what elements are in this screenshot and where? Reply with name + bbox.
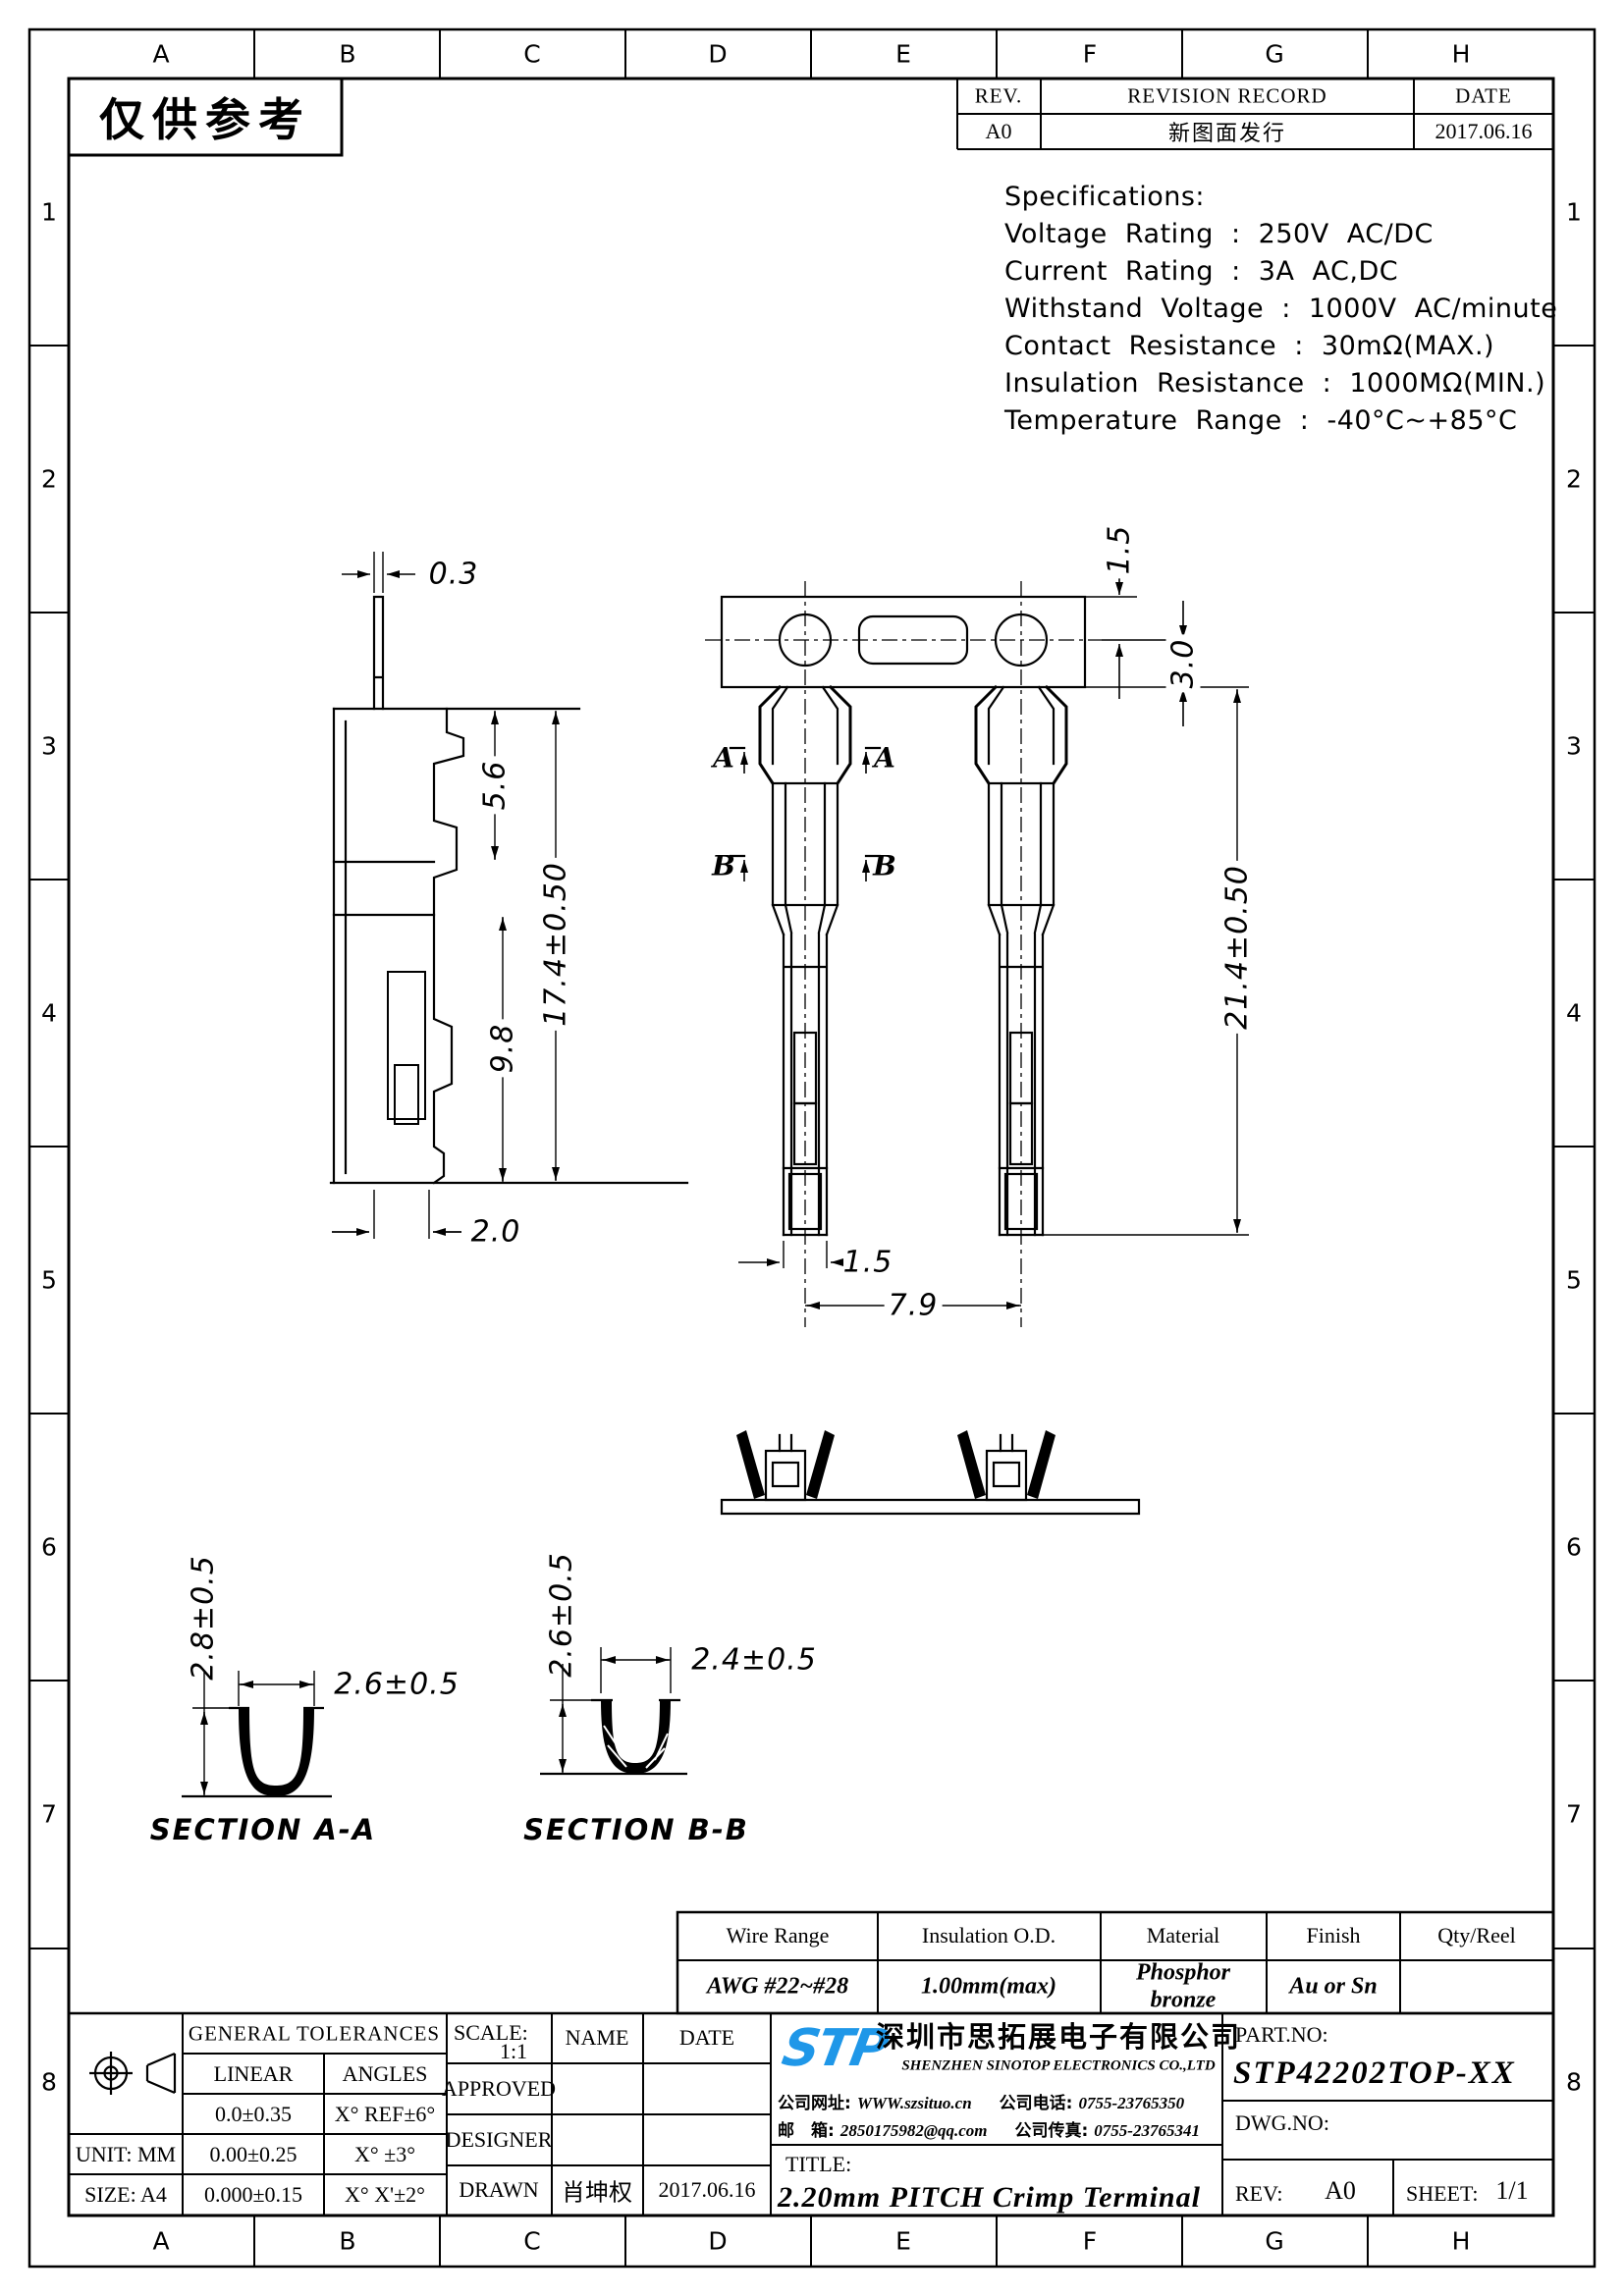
part-no-label: PART.NO:: [1235, 2022, 1328, 2048]
revision-date-header: DATE: [1455, 84, 1512, 109]
cut-label-a-left: A: [713, 742, 734, 774]
tel-label: 公司电话:: [1000, 2094, 1073, 2113]
grid-col-bottom-g: G: [1265, 2227, 1283, 2256]
drawing-title: 2.20mm PITCH Crimp Terminal: [778, 2181, 1201, 2215]
revision-date-value: 2017.06.16: [1435, 119, 1533, 144]
unit-label: UNIT: MM: [76, 2142, 176, 2167]
fax-value: 0755-23765341: [1094, 2121, 1200, 2140]
scale-value: 1:1: [500, 2039, 527, 2064]
specification-line: Voltage Rating : 250V AC/DC: [1004, 216, 1557, 253]
grid-col-top-b: B: [339, 40, 355, 69]
front-view: [722, 597, 1085, 1235]
rev-label: REV:: [1235, 2181, 1282, 2207]
grid-col-top-c: C: [523, 40, 540, 69]
dimension-lines: [192, 552, 1249, 1796]
specifications-lines: Voltage Rating : 250V AC/DCCurrent Ratin…: [1004, 216, 1557, 440]
size-label: SIZE: A4: [84, 2182, 167, 2208]
dimension-arrows: [204, 542, 1237, 1794]
revision-rev-header: REV.: [975, 84, 1023, 109]
approved-label: APPROVED: [442, 2076, 556, 2102]
web-label: 公司网址:: [778, 2094, 851, 2113]
dim-side-thickness: 0.3: [429, 558, 479, 592]
specification-line: Contact Resistance : 30mΩ(MAX.): [1004, 328, 1557, 365]
specification-line: Temperature Range : -40°C~+85°C: [1004, 402, 1557, 440]
tel-value: 0755-23765350: [1078, 2094, 1184, 2112]
materials-insulation: 1.00mm(max): [921, 1974, 1056, 2001]
dim-section-a-width: 2.6±0.5: [334, 1668, 460, 1702]
grid-row-right-8: 8: [1566, 2068, 1582, 2097]
materials-finish: Au or Sn: [1289, 1974, 1377, 2001]
grid-row-right-2: 2: [1566, 465, 1582, 494]
tolerance-angle-3: X° X'±2°: [345, 2182, 425, 2208]
grid-col-top-e: E: [895, 40, 911, 69]
materials-material: Phosphor bronze: [1136, 1959, 1230, 2013]
grid-row-left-4: 4: [41, 999, 57, 1028]
revision-record-header: REVISION RECORD: [1127, 84, 1326, 109]
tolerance-linear-3: 0.000±0.15: [204, 2182, 302, 2208]
dim-front-margin: 1.5: [1103, 521, 1137, 579]
revision-record-value: 新图面发行: [1168, 116, 1286, 147]
contact-line-2: 邮 箱:2850175982@qq.com公司传真:0755-23765341: [778, 2116, 1200, 2141]
rev-value: A0: [1325, 2176, 1356, 2206]
section-b-title: SECTION B-B: [523, 1813, 749, 1846]
contact-line-1: 公司网址:WWW.szsituo.cn公司电话:0755-23765350: [778, 2089, 1184, 2113]
dim-section-b-height: 2.6±0.5: [545, 1552, 579, 1678]
designer-label: DESIGNER: [446, 2127, 553, 2153]
grid-row-right-3: 3: [1566, 732, 1582, 761]
date-header: DATE: [679, 2025, 734, 2051]
grid-col-bottom-a: A: [152, 2227, 169, 2256]
section-a-title: SECTION A-A: [150, 1813, 377, 1846]
tolerance-linear-2: 0.00±0.25: [209, 2142, 297, 2167]
grid-row-left-1: 1: [41, 198, 57, 227]
cut-label-b-left: B: [712, 850, 735, 882]
drawn-label: DRAWN: [459, 2177, 538, 2203]
mail-value: 2850175982@qq.com: [840, 2121, 988, 2140]
materials-header-finish: Finish: [1306, 1923, 1360, 1949]
grid-col-top-d: D: [708, 40, 727, 69]
web-value: WWW.szsituo.cn: [857, 2094, 972, 2112]
materials-header-material: Material: [1147, 1923, 1220, 1949]
drawn-date: 2017.06.16: [659, 2177, 756, 2203]
grid-row-right-5: 5: [1566, 1266, 1582, 1295]
specification-line: Withstand Voltage : 1000V AC/minute: [1004, 291, 1557, 328]
dim-front-strip: 3.0: [1166, 635, 1201, 693]
materials-header-wire-range: Wire Range: [727, 1923, 830, 1949]
revision-rev-value: A0: [986, 119, 1012, 144]
grid-row-left-8: 8: [41, 2068, 57, 2097]
title-label: TITLE:: [785, 2152, 851, 2177]
name-header: NAME: [566, 2025, 629, 2051]
specification-line: Insulation Resistance : 1000MΩ(MIN.): [1004, 365, 1557, 402]
part-no-value: STP42202TOP-XX: [1233, 2056, 1516, 2092]
dim-side-foot: 2.0: [471, 1215, 521, 1250]
cut-label-a-right: A: [874, 742, 895, 774]
angles-label: ANGLES: [343, 2061, 428, 2087]
reference-only-stamp: 仅供参考: [99, 84, 311, 149]
grid-col-bottom-b: B: [339, 2227, 355, 2256]
grid-row-right-4: 4: [1566, 999, 1582, 1028]
specification-line: Current Rating : 3A AC,DC: [1004, 253, 1557, 291]
grid-row-left-7: 7: [41, 1800, 57, 1829]
dim-front-pitch: 7.9: [885, 1289, 943, 1323]
grid-col-top-g: G: [1265, 40, 1283, 69]
grid-col-bottom-h: H: [1452, 2227, 1471, 2256]
sheet-value: 1/1: [1495, 2176, 1528, 2206]
grid-row-right-1: 1: [1566, 198, 1582, 227]
drawn-name: 肖坤权: [562, 2173, 632, 2208]
tolerance-angle-1: X° REF±6°: [335, 2102, 435, 2127]
cut-label-b-right: B: [873, 850, 896, 882]
sheet-label: SHEET:: [1406, 2181, 1478, 2207]
general-tolerances-label: GENERAL TOLERANCES: [189, 2022, 440, 2047]
linear-label: LINEAR: [214, 2061, 294, 2087]
grid-col-top-a: A: [152, 40, 169, 69]
grid-col-bottom-f: F: [1083, 2227, 1097, 2256]
dim-side-overall: 17.4±0.50: [539, 858, 573, 1031]
materials-wire-range: AWG #22~#28: [707, 1974, 848, 2001]
company-logo: STP: [778, 2019, 892, 2078]
grid-row-left-6: 6: [41, 1533, 57, 1562]
dim-front-overall: 21.4±0.50: [1220, 861, 1255, 1034]
dim-side-flange: 5.6: [478, 757, 513, 815]
drawing-sheet: 仅供参考 A B C D E F G H A B C D E F G H 1 2…: [0, 0, 1624, 2296]
dim-front-tip: 1.5: [843, 1246, 893, 1280]
fax-label: 公司传真:: [1014, 2121, 1088, 2141]
third-angle-projection-icon: [89, 2052, 175, 2095]
tolerance-angle-2: X° ±3°: [354, 2142, 415, 2167]
grid-row-left-3: 3: [41, 732, 57, 761]
dim-section-b-width: 2.4±0.5: [691, 1643, 817, 1678]
grid-col-top-h: H: [1452, 40, 1471, 69]
grid-col-bottom-d: D: [708, 2227, 727, 2256]
grid-row-left-2: 2: [41, 465, 57, 494]
dwg-no-label: DWG.NO:: [1235, 2110, 1329, 2136]
materials-header-qty-reel: Qty/Reel: [1437, 1923, 1515, 1949]
grid-row-right-7: 7: [1566, 1800, 1582, 1829]
grid-col-bottom-c: C: [523, 2227, 540, 2256]
grid-col-top-f: F: [1083, 40, 1097, 69]
grid-col-bottom-e: E: [895, 2227, 911, 2256]
specifications-title: Specifications:: [1004, 179, 1557, 216]
grid-row-right-6: 6: [1566, 1533, 1582, 1562]
grid-row-left-5: 5: [41, 1266, 57, 1295]
top-view: [722, 1430, 1139, 1514]
dim-section-a-height: 2.8±0.5: [187, 1555, 221, 1681]
materials-header-insulation: Insulation O.D.: [922, 1923, 1056, 1949]
tolerance-linear-1: 0.0±0.35: [215, 2102, 292, 2127]
company-name-en: SHENZHEN SINOTOP ELECTRONICS CO.,LTD: [901, 2058, 1215, 2075]
company-name-cn: 深圳市思拓展电子有限公司: [876, 2014, 1241, 2056]
specifications-block: Specifications: Voltage Rating : 250V AC…: [1004, 179, 1557, 440]
dim-side-body: 9.8: [486, 1020, 520, 1078]
side-view: [331, 597, 687, 1183]
mail-label: 邮 箱:: [778, 2121, 835, 2141]
